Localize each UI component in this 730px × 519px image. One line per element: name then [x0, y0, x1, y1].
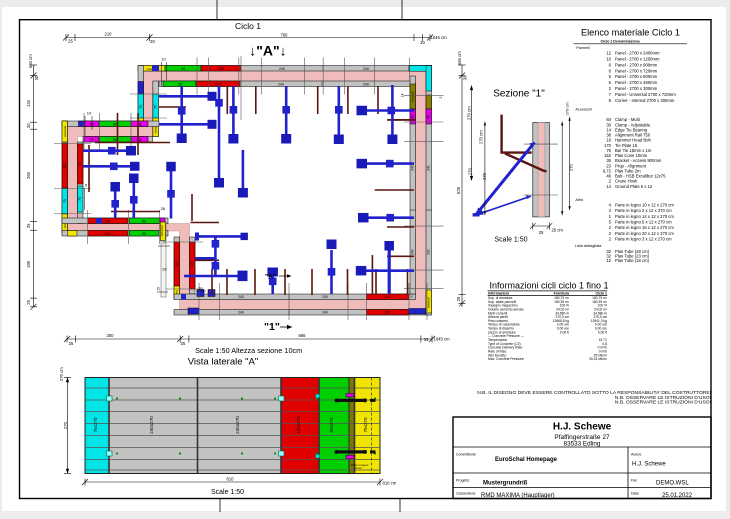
svg-text:Panel - Universal 2700 x 720mm: Panel - Universal 2700 x 720mm — [615, 92, 676, 97]
svg-text:Corner - Internal 2700 x 300mm: Corner - Internal 2700 x 300mm — [615, 98, 675, 103]
svg-text:Vista laterale "A": Vista laterale "A" — [188, 357, 258, 368]
svg-text:45: 45 — [90, 122, 94, 126]
svg-text:15: 15 — [157, 287, 161, 291]
svg-text:90: 90 — [142, 232, 146, 236]
svg-text:0,00 €: 0,00 € — [598, 330, 607, 334]
svg-text:270: 270 — [467, 167, 472, 175]
svg-text:Parte in legno 16 x 12 x 270 c: Parte in legno 16 x 12 x 270 cm — [615, 225, 674, 230]
svg-text:12: 12 — [606, 258, 611, 263]
svg-text:25: 25 — [26, 299, 31, 304]
svg-text:1045 cm: 1045 cm — [431, 35, 448, 40]
svg-text:Universal: Universal — [63, 126, 67, 137]
svg-text:Panel - 2700 x 1200mm: Panel - 2700 x 1200mm — [615, 57, 660, 62]
svg-text:2: 2 — [439, 96, 443, 98]
svg-text:Panel - 2700 x 450mm: Panel - 2700 x 450mm — [615, 80, 658, 85]
svg-text:120: 120 — [175, 261, 179, 267]
svg-text:75: 75 — [154, 105, 158, 109]
svg-text:270: 270 — [482, 172, 487, 180]
svg-text:25: 25 — [456, 296, 461, 301]
svg-text:Ciclo 1: Ciclo 1 — [596, 292, 608, 296]
svg-text:684 cm: 684 cm — [28, 54, 33, 68]
svg-text:File:: File: — [631, 479, 638, 483]
svg-text:Parte in legno 5 x 12 x 270 cm: Parte in legno 5 x 12 x 270 cm — [615, 220, 672, 225]
svg-text:240: 240 — [322, 295, 328, 299]
svg-text:Panel - 2700 x 2400mm: Panel - 2700 x 2400mm — [615, 51, 660, 56]
svg-text:240: 240 — [427, 165, 431, 171]
svg-text:120: 120 — [190, 261, 194, 267]
svg-text:Scale 1:50: Scale 1:50 — [494, 237, 527, 244]
svg-text:Autore: Autore — [631, 453, 641, 457]
svg-text:N.B. OSSERVARE LE ISTRUZIONI D: N.B. OSSERVARE LE ISTRUZIONI D’USO! — [615, 400, 711, 406]
svg-text:120: 120 — [105, 232, 111, 236]
svg-text:240: 240 — [278, 83, 284, 87]
svg-text:195: 195 — [26, 260, 31, 268]
svg-text:14: 14 — [401, 94, 405, 98]
svg-text:120: 120 — [384, 311, 390, 315]
svg-text:Parte in legno 10 x 12 x 270 c: Parte in legno 10 x 12 x 270 cm — [615, 202, 674, 207]
svg-text:"A": "A" — [265, 274, 276, 281]
svg-text:810 cm: 810 cm — [383, 480, 397, 485]
svg-text:240: 240 — [238, 311, 244, 315]
svg-text:25: 25 — [69, 341, 74, 346]
svg-text:Parte in legno 20 x 12 x 270 c: Parte in legno 20 x 12 x 270 cm — [615, 231, 674, 236]
svg-text:90: 90 — [113, 122, 117, 126]
svg-text:240: 240 — [238, 295, 244, 299]
svg-text:30: 30 — [420, 40, 425, 45]
svg-text:"1": "1" — [264, 321, 280, 333]
svg-text:240: 240 — [363, 83, 369, 87]
svg-text:75x270: 75x270 — [363, 417, 368, 433]
svg-text:270 cm: 270 cm — [478, 130, 483, 144]
svg-text:DEMO.WSL: DEMO.WSL — [656, 480, 689, 486]
svg-text:Ciclo 1 Denominazione: Ciclo 1 Denominazione — [601, 39, 640, 43]
svg-text:10x12: 10x12 — [354, 466, 362, 470]
svg-text:240: 240 — [322, 311, 328, 315]
svg-text:45: 45 — [90, 138, 94, 142]
svg-text:10: 10 — [87, 111, 92, 116]
svg-text:90: 90 — [181, 67, 185, 71]
svg-text:240: 240 — [279, 67, 285, 71]
svg-text:RMD MAXIMA (Hauptlager): RMD MAXIMA (Hauptlager) — [481, 493, 555, 499]
svg-text:Universal: Universal — [411, 91, 415, 102]
svg-text:240: 240 — [411, 249, 415, 255]
svg-text:45: 45 — [411, 115, 415, 119]
svg-text:26: 26 — [161, 206, 166, 211]
svg-text:90x270: 90x270 — [329, 417, 334, 433]
svg-text:H.J. Schewe: H.J. Schewe — [632, 462, 666, 468]
svg-text:↓"A"↓: ↓"A"↓ — [249, 43, 286, 59]
svg-text:666: 666 — [299, 333, 307, 338]
svg-text:120x270: 120x270 — [296, 416, 301, 434]
svg-text:25: 25 — [68, 39, 73, 44]
svg-text:120: 120 — [63, 163, 67, 169]
svg-text:20: 20 — [409, 295, 413, 299]
svg-text:Altro: Altro — [575, 198, 583, 202]
svg-text:33: 33 — [424, 337, 429, 342]
svg-text:Universal: Universal — [160, 225, 164, 236]
svg-text:Informazioni cicli ciclo 1 fi: Informazioni cicli ciclo 1 fino 1 — [490, 280, 609, 290]
svg-text:0,00 €: 0,00 € — [560, 330, 569, 334]
svg-text:300: 300 — [107, 333, 115, 338]
svg-text:90: 90 — [178, 83, 182, 87]
svg-text:Committente: Committente — [456, 453, 476, 457]
svg-text:Pannelli: Pannelli — [576, 46, 590, 50]
svg-text:EuroSchal Homepage: EuroSchal Homepage — [495, 457, 558, 463]
svg-text:Panel - 2700 x 720mm: Panel - 2700 x 720mm — [615, 68, 658, 73]
svg-text:270 cm: 270 cm — [59, 367, 64, 381]
svg-text:810: 810 — [227, 476, 235, 481]
svg-text:H.J. Schewe: H.J. Schewe — [553, 422, 612, 433]
svg-text:30,24 kN/m²: 30,24 kN/m² — [589, 357, 608, 361]
svg-text:30: 30 — [462, 75, 467, 80]
svg-text:Elenco materiale Ciclo 1: Elenco materiale Ciclo 1 — [581, 28, 680, 38]
svg-text:75: 75 — [78, 197, 82, 201]
svg-text:265: 265 — [26, 171, 31, 179]
svg-text:75x270: 75x270 — [93, 417, 98, 433]
svg-text:760: 760 — [281, 33, 289, 38]
svg-text:684 cm: 684 cm — [457, 51, 462, 65]
svg-text:Panel - 2700 x 600mm: Panel - 2700 x 600mm — [615, 74, 658, 79]
svg-text:Ciclo 1: Ciclo 1 — [235, 21, 261, 31]
svg-text:25: 25 — [539, 230, 544, 235]
svg-text:20: 20 — [26, 123, 31, 128]
svg-text:270 cm: 270 cm — [466, 106, 471, 120]
svg-text:Parte in legno 14 x 12 x 270 c: Parte in legno 14 x 12 x 270 cm — [615, 214, 674, 219]
svg-text:75: 75 — [63, 199, 67, 203]
svg-text:28: 28 — [162, 267, 167, 272]
svg-text:240: 240 — [411, 165, 415, 171]
svg-text:Casseratura:: Casseratura: — [456, 492, 476, 496]
svg-text:Progetto:: Progetto: — [456, 479, 470, 483]
svg-text:90: 90 — [142, 219, 146, 223]
svg-text:1045 cm: 1045 cm — [434, 337, 451, 342]
svg-text:Fornitura: Fornitura — [554, 292, 569, 296]
svg-text:45: 45 — [427, 115, 431, 119]
svg-text:120: 120 — [78, 161, 82, 167]
svg-text:Panel - 2700 x 300mm: Panel - 2700 x 300mm — [615, 86, 658, 91]
svg-text:20: 20 — [162, 240, 166, 244]
svg-text:120: 120 — [218, 67, 224, 71]
svg-text:Accessori: Accessori — [575, 108, 592, 112]
svg-text:240x270: 240x270 — [235, 416, 240, 434]
svg-text:Sezione "1": Sezione "1" — [493, 89, 545, 100]
svg-text:270 cm: 270 cm — [565, 102, 570, 116]
svg-text:Parte in legno 2 x 12 x 270 cm: Parte in legno 2 x 12 x 270 cm — [615, 208, 672, 213]
svg-text:10: 10 — [161, 57, 166, 62]
svg-text:Panel - 2700 x 900mm: Panel - 2700 x 900mm — [615, 62, 658, 67]
svg-text:30: 30 — [34, 75, 39, 80]
svg-text:Plas Tube (18 cm): Plas Tube (18 cm) — [615, 258, 650, 263]
svg-text:629: 629 — [456, 186, 461, 194]
svg-text:14: 14 — [606, 184, 611, 189]
svg-text:240x270: 240x270 — [149, 416, 154, 434]
svg-text:Scale 1:50: Scale 1:50 — [211, 489, 244, 496]
svg-text:Parte in legno 3 x 12 x 270 cm: Parte in legno 3 x 12 x 270 cm — [615, 237, 672, 242]
svg-text:240: 240 — [427, 249, 431, 255]
svg-text:270: 270 — [63, 421, 68, 429]
svg-text:12: 12 — [606, 51, 611, 56]
svg-text:Lista dettagliata: Lista dettagliata — [575, 244, 602, 248]
svg-text:Mustergrundriß: Mustergrundriß — [483, 480, 528, 486]
svg-text:Data:: Data: — [631, 492, 639, 496]
svg-text:134: 134 — [26, 99, 31, 107]
svg-text:Ground Plate 5 x 12: Ground Plate 5 x 12 — [615, 184, 653, 189]
svg-text:Scale 1:50 Altezza sezione 1: Scale 1:50 Altezza sezione 10cm — [195, 346, 302, 355]
svg-text:10: 10 — [199, 287, 203, 291]
svg-text:Max. Concrete Pressure:: Max. Concrete Pressure: — [488, 357, 525, 361]
svg-text:90: 90 — [113, 138, 117, 142]
svg-text:240: 240 — [363, 67, 369, 71]
svg-text:270: 270 — [569, 164, 574, 171]
svg-text:210: 210 — [105, 32, 113, 37]
svg-text:83533 Edling: 83533 Edling — [564, 440, 601, 447]
svg-text:20: 20 — [150, 39, 155, 44]
svg-text:Informazioni: Informazioni — [488, 292, 509, 296]
svg-text:25 cm: 25 cm — [552, 228, 564, 233]
svg-text:120: 120 — [215, 83, 221, 87]
svg-text:25: 25 — [181, 341, 186, 346]
svg-text:120: 120 — [105, 219, 111, 223]
svg-text:25.01.2022: 25.01.2022 — [662, 493, 693, 499]
svg-text:25: 25 — [26, 223, 31, 228]
svg-text:120: 120 — [384, 295, 390, 299]
svg-text:10: 10 — [606, 57, 611, 62]
svg-text:75: 75 — [139, 105, 143, 109]
